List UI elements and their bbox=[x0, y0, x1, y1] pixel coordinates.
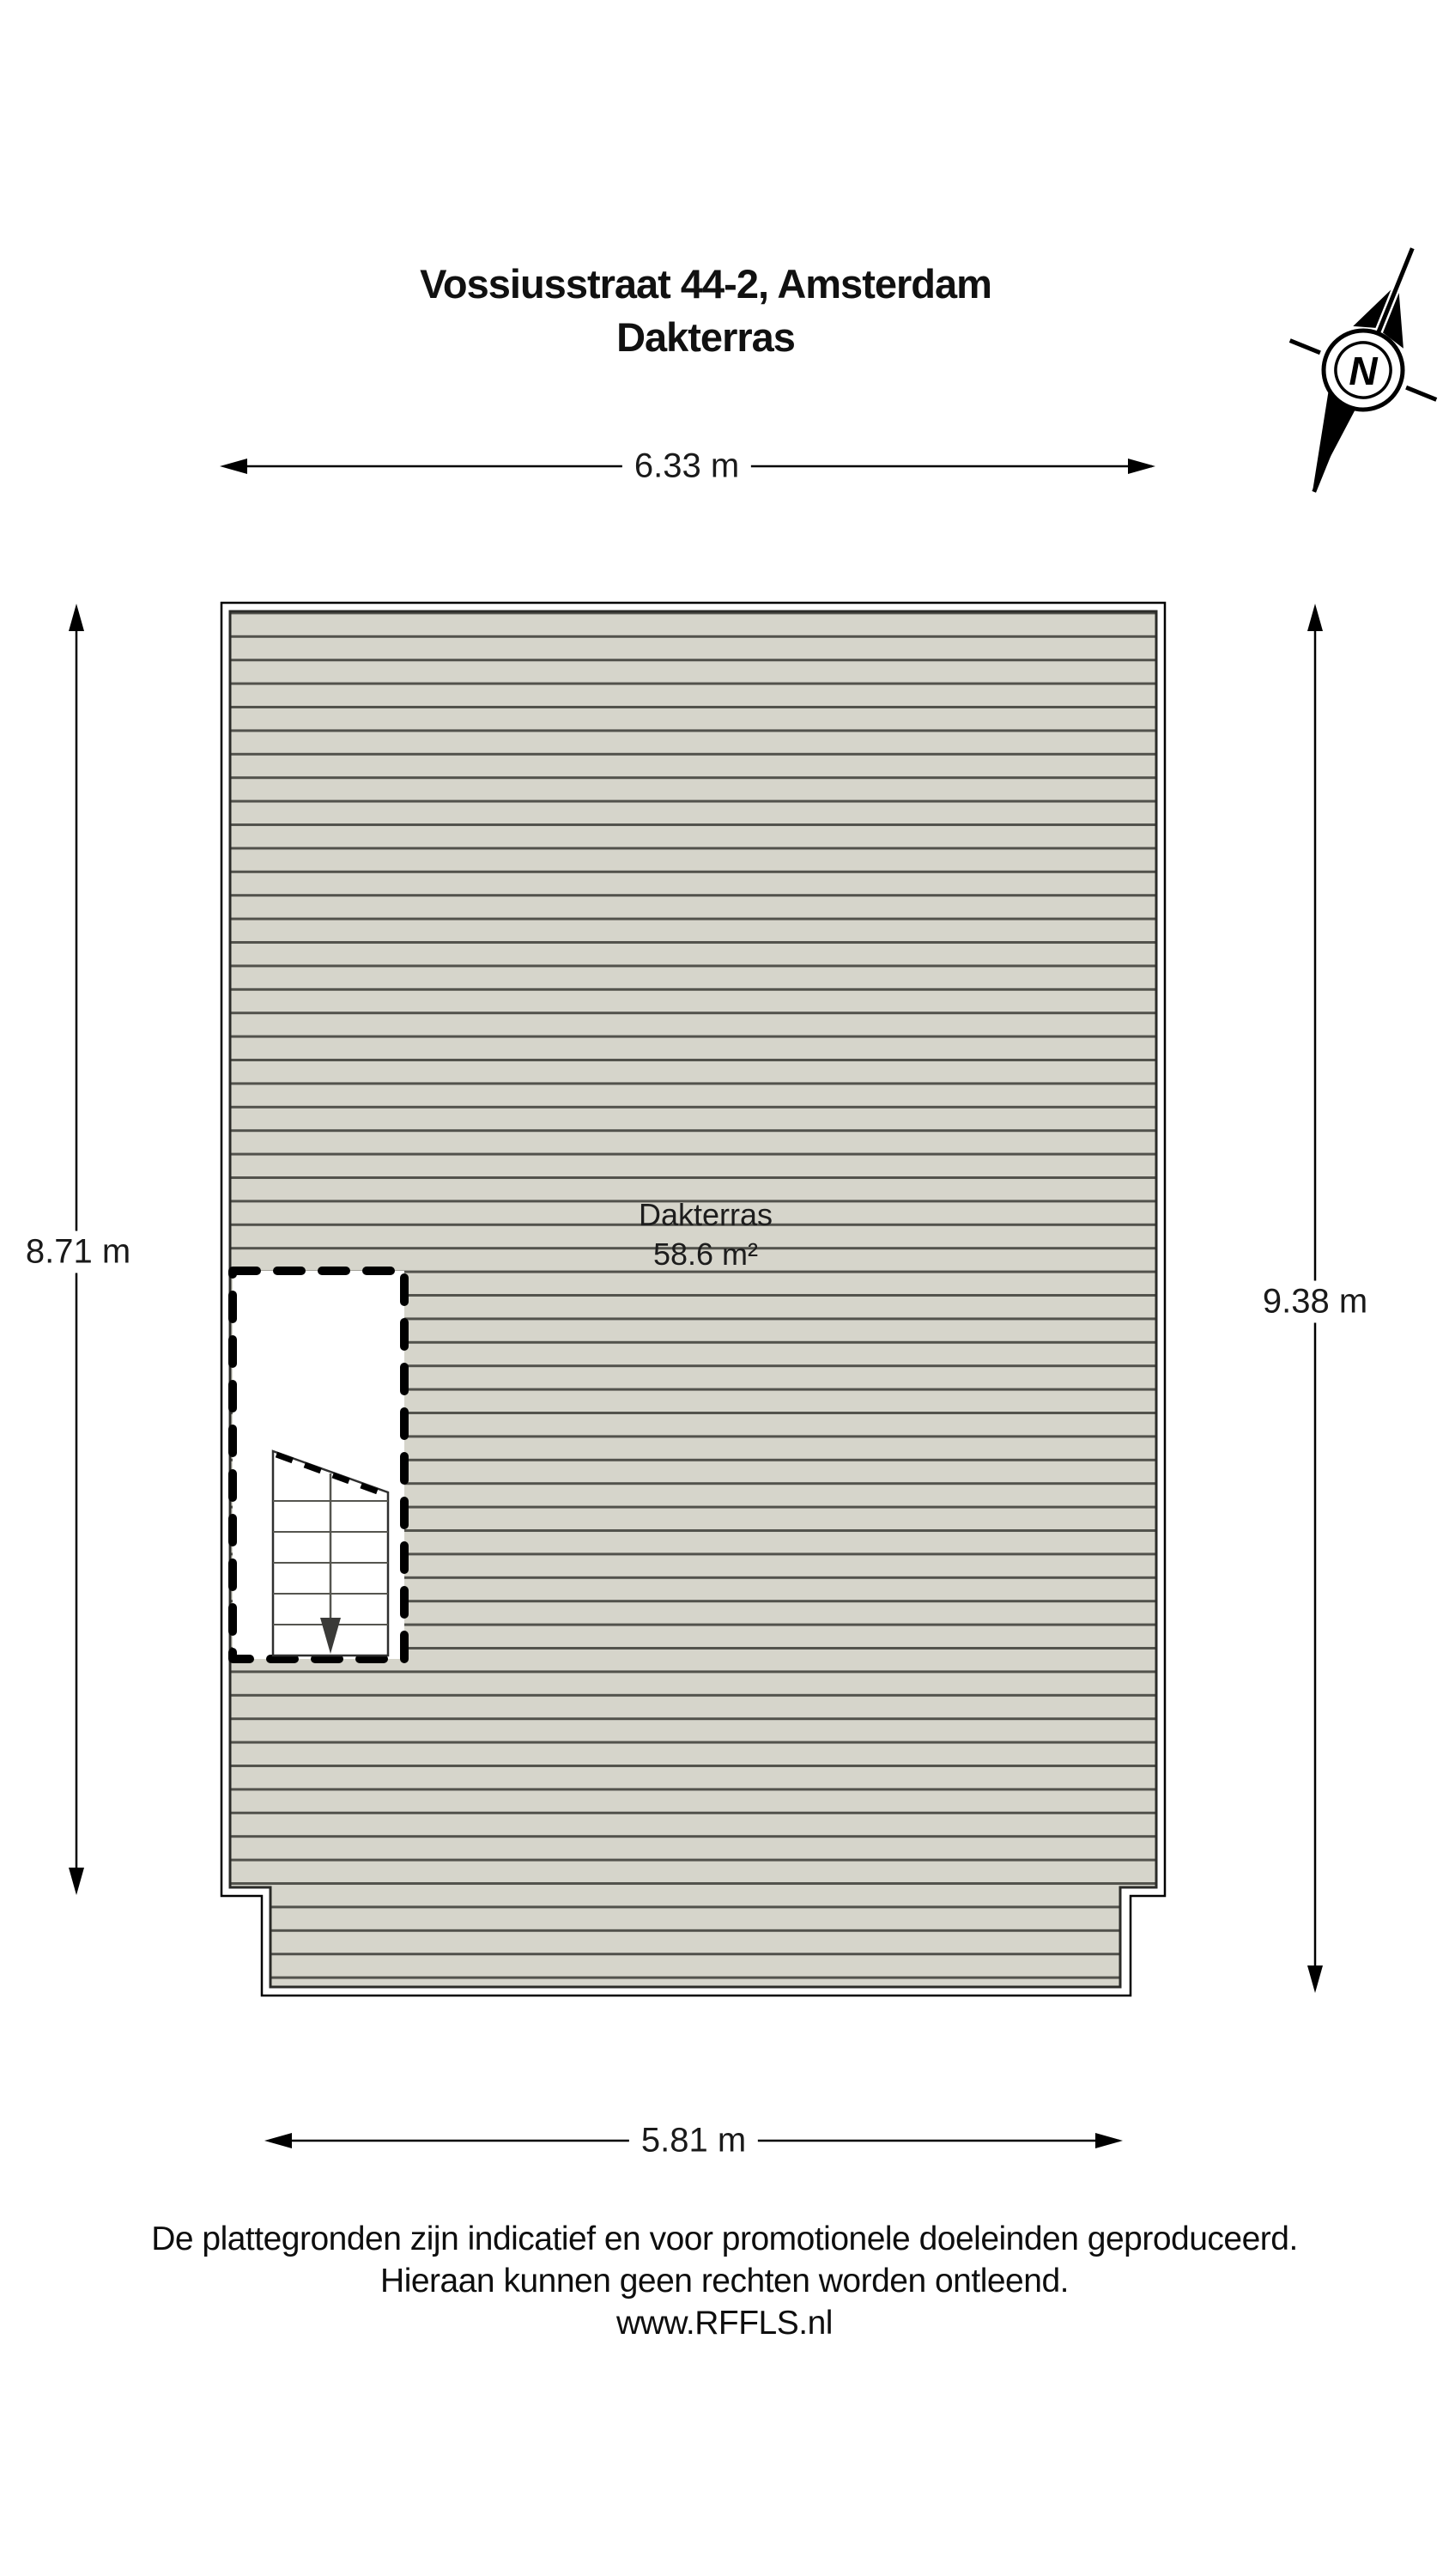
floorplan-page: { "title": { "line1": "Vossiusstraat 44-… bbox=[0, 0, 1449, 2576]
room-label: Dakterras 58.6 m² bbox=[639, 1195, 773, 1274]
dimension-label-right: 9.38 m bbox=[1251, 1281, 1379, 1323]
dimension-label-bottom: 5.81 m bbox=[629, 2120, 758, 2162]
disclaimer-website: www.RFFLS.nl bbox=[0, 2302, 1449, 2344]
disclaimer-line-2: Hieraan kunnen geen rechten worden ontle… bbox=[0, 2260, 1449, 2302]
disclaimer: De plattegronden zijn indicatief en voor… bbox=[0, 2218, 1449, 2344]
room-name: Dakterras bbox=[639, 1195, 773, 1235]
dimension-label-left: 8.71 m bbox=[14, 1231, 142, 1273]
room-area: 58.6 m² bbox=[639, 1235, 773, 1274]
dimension-label-top: 6.33 m bbox=[622, 446, 751, 488]
floor-plan-drawing bbox=[0, 0, 1449, 2576]
disclaimer-line-1: De plattegronden zijn indicatief en voor… bbox=[0, 2218, 1449, 2260]
